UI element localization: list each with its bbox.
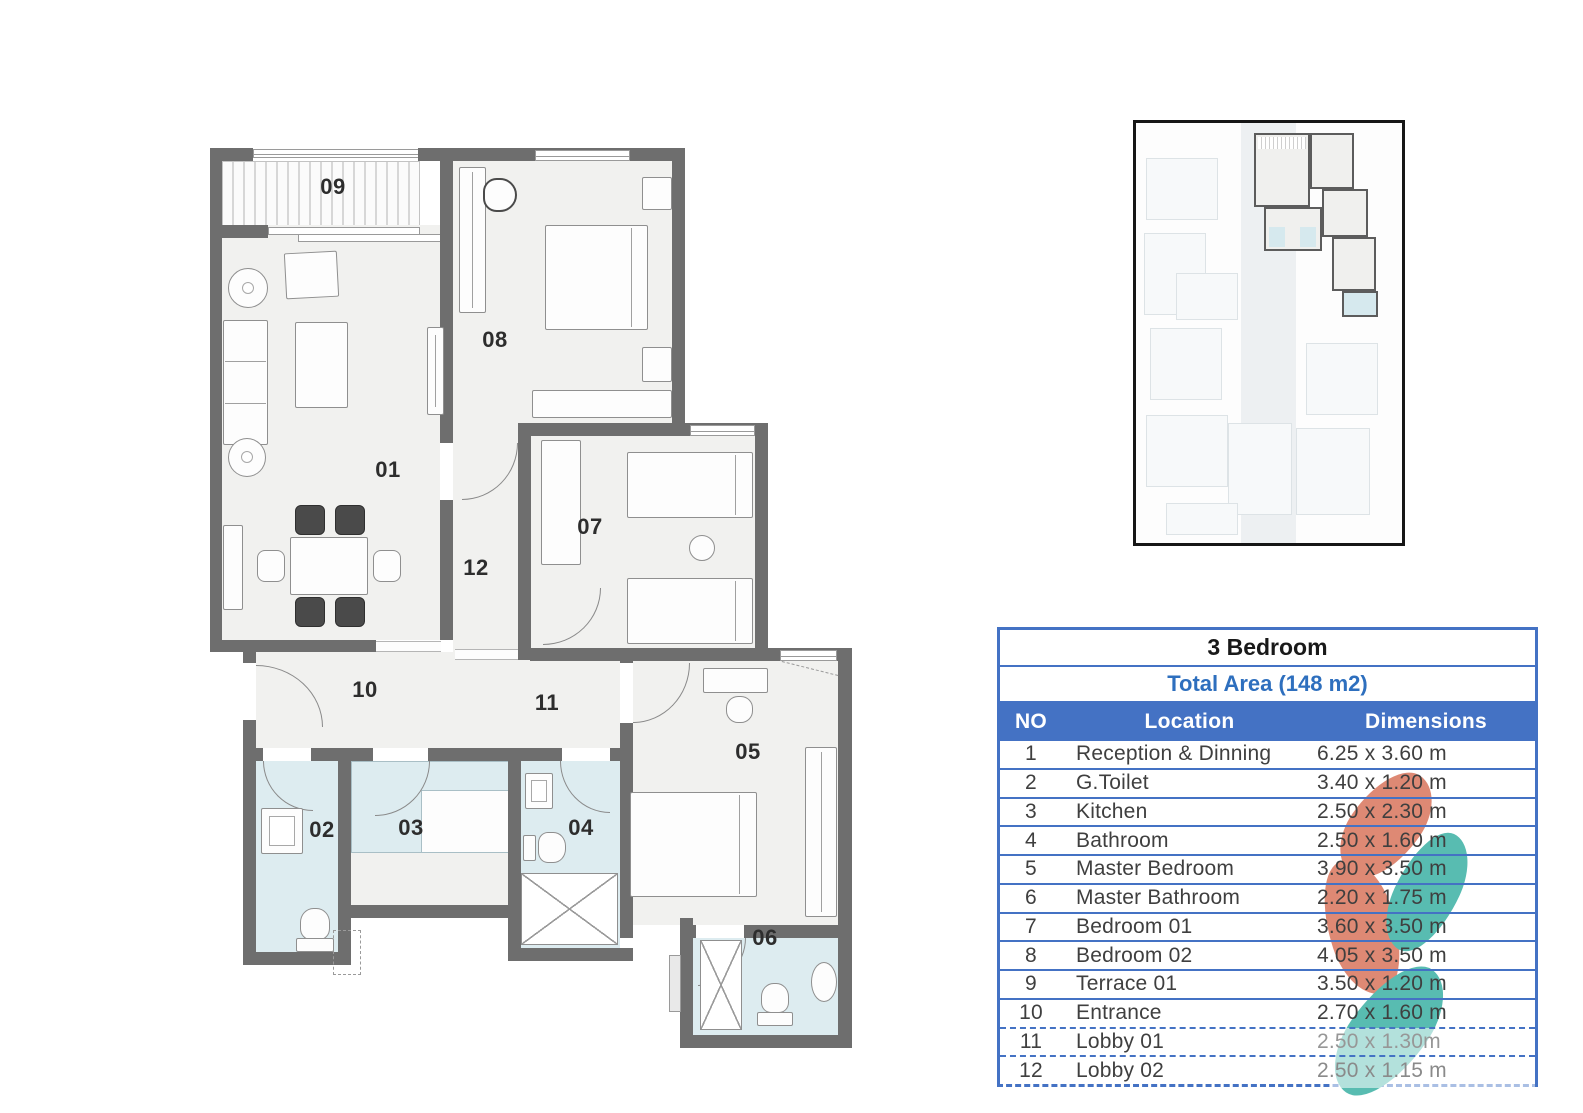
column-header-dimensions: Dimensions: [1317, 710, 1535, 734]
row-number: 2: [1000, 771, 1062, 795]
wall: [210, 148, 222, 652]
row-number: 7: [1000, 915, 1062, 939]
room-label-10: 10: [352, 677, 377, 703]
sink-basin: [269, 816, 295, 846]
pouf-center: [241, 451, 253, 463]
nightstand: [642, 347, 672, 382]
floor-plan: 09 01 08 12 07 10 11 02 03 04 05 06: [183, 140, 855, 1055]
table-row: 2 G.Toilet 3.40 x 1.20 m: [1000, 768, 1535, 797]
door-opening: [373, 748, 428, 761]
row-location: Bedroom 01: [1062, 915, 1309, 939]
sofa: [223, 320, 268, 445]
row-location: Bathroom: [1062, 829, 1309, 853]
table-row: 8 Bedroom 02 4.05 x 3.50 m: [1000, 940, 1535, 969]
wall: [838, 648, 852, 1048]
toilet-tank: [296, 938, 334, 952]
tv-line: [435, 335, 436, 407]
room-label-09: 09: [320, 174, 345, 200]
table-row: 12 Lobby 02 2.50 x 1.15 m: [1000, 1055, 1535, 1084]
wall: [755, 423, 768, 661]
spec-table-body: 1 Reception & Dinning 6.25 x 3.60 m 2 G.…: [1000, 741, 1535, 1084]
threshold: [376, 641, 441, 652]
page: 09 01 08 12 07 10 11 02 03 04 05 06: [0, 0, 1583, 1113]
minimap-room: [1228, 423, 1292, 515]
table-title: 3 Bedroom: [1000, 630, 1535, 667]
table-row: 10 Entrance 2.70 x 1.60 m: [1000, 998, 1535, 1027]
sliding-door: [298, 234, 445, 242]
table-row: 7 Bedroom 01 3.60 x 3.50 m: [1000, 912, 1535, 941]
minimap-room: [1176, 273, 1238, 320]
row-number: 11: [1000, 1030, 1062, 1054]
toilet: [300, 908, 330, 940]
room-label-11: 11: [535, 690, 559, 716]
door-opening: [696, 925, 744, 938]
dining-chair: [257, 550, 285, 582]
armchair: [284, 251, 339, 300]
coffee-table: [295, 322, 348, 408]
wall: [518, 423, 531, 660]
row-number: 8: [1000, 944, 1062, 968]
sofa-cushion-line: [225, 361, 266, 362]
room-label-07: 07: [577, 514, 602, 540]
row-location: Entrance: [1062, 1001, 1309, 1025]
row-dimensions: 3.60 x 3.50 m: [1309, 915, 1535, 939]
column-header-location: Location: [1062, 710, 1317, 734]
row-location: Bedroom 02: [1062, 944, 1309, 968]
side-table: [689, 535, 715, 561]
bed: [630, 792, 757, 897]
row-number: 3: [1000, 800, 1062, 824]
specification-table: 3 Bedroom Total Area (148 m2) NO Locatio…: [997, 627, 1538, 1087]
door-opening: [243, 663, 256, 720]
row-dimensions: 6.25 x 3.60 m: [1309, 742, 1535, 766]
row-dimensions: 2.50 x 2.30 m: [1309, 800, 1535, 824]
minimap-room: [1166, 503, 1238, 535]
kitchen-03-counter-notch: [421, 790, 509, 852]
row-location: Reception & Dinning: [1062, 742, 1309, 766]
minimap-room: [1306, 343, 1378, 415]
threshold: [455, 649, 523, 660]
door-opening: [440, 443, 453, 500]
row-location: Master Bedroom: [1062, 857, 1309, 881]
minimap-room: [1150, 328, 1222, 400]
row-dimensions: 3.90 x 3.50 m: [1309, 857, 1535, 881]
room-label-04: 04: [568, 815, 593, 841]
wall: [338, 905, 521, 918]
dresser: [532, 390, 672, 418]
door-opening: [263, 748, 311, 761]
minimap-highlighted-unit: [1310, 133, 1354, 189]
toilet-tank: [523, 835, 536, 861]
column-header-no: NO: [1000, 710, 1062, 734]
toilet-tank: [757, 1012, 793, 1026]
wardrobe-line: [821, 752, 822, 912]
minimap-highlighted-unit: [1254, 133, 1310, 207]
minimap-highlighted-unit: [1332, 237, 1376, 291]
sink-basin: [531, 780, 547, 802]
dining-chair: [335, 597, 365, 627]
wall: [508, 948, 633, 961]
row-number: 4: [1000, 829, 1062, 853]
row-location: Lobby 01: [1062, 1030, 1309, 1054]
row-dimensions: 4.05 x 3.50 m: [1309, 944, 1535, 968]
table-row: 6 Master Bathroom 2.20 x 1.75 m: [1000, 883, 1535, 912]
row-number: 10: [1000, 1001, 1062, 1025]
dining-chair: [373, 550, 401, 582]
chair: [483, 178, 517, 212]
unit-locator-minimap: [1133, 120, 1405, 546]
row-dimensions: 2.50 x 1.30m: [1309, 1030, 1535, 1054]
table-row: 3 Kitchen 2.50 x 2.30 m: [1000, 797, 1535, 826]
minimap-highlighted-unit: [1264, 207, 1322, 251]
table-subtitle: Total Area (148 m2): [1000, 667, 1535, 703]
wall: [210, 640, 376, 652]
table-row: 9 Terrace 01 3.50 x 1.20 m: [1000, 969, 1535, 998]
row-number: 6: [1000, 886, 1062, 910]
table-row: 11 Lobby 01 2.50 x 1.30m: [1000, 1027, 1535, 1056]
room-label-03: 03: [398, 815, 423, 841]
desk: [703, 668, 768, 693]
wall: [680, 918, 693, 1035]
window: [535, 150, 630, 161]
row-dimensions: 2.50 x 1.60 m: [1309, 829, 1535, 853]
room-label-12: 12: [463, 555, 488, 581]
wall: [680, 1035, 852, 1048]
row-dimensions: 2.50 x 1.15 m: [1309, 1059, 1535, 1083]
toilet: [538, 832, 566, 863]
room-label-02: 02: [309, 817, 334, 843]
row-number: 9: [1000, 972, 1062, 996]
row-dimensions: 3.40 x 1.20 m: [1309, 771, 1535, 795]
row-location: Kitchen: [1062, 800, 1309, 824]
row-location: Master Bathroom: [1062, 886, 1309, 910]
dining-chair: [295, 597, 325, 627]
terrace-railing: [253, 149, 420, 158]
room-label-05: 05: [735, 739, 760, 765]
door-opening: [562, 748, 610, 761]
bed-pillow-line: [739, 795, 740, 894]
minimap-highlighted-unit: [1342, 291, 1378, 317]
minimap-room: [1146, 158, 1218, 220]
sink: [811, 962, 837, 1002]
row-location: Terrace 01: [1062, 972, 1309, 996]
row-number: 12: [1000, 1059, 1062, 1083]
bed: [545, 225, 648, 330]
row-dimensions: 3.50 x 1.20 m: [1309, 972, 1535, 996]
row-number: 1: [1000, 742, 1062, 766]
dashed-unit: [333, 930, 361, 975]
ledge: [669, 955, 681, 1012]
wall: [508, 753, 521, 961]
dining-table: [290, 537, 368, 595]
sideboard: [223, 525, 243, 610]
wall: [672, 148, 685, 436]
table-header: NO Location Dimensions: [1000, 703, 1535, 741]
row-dimensions: 2.20 x 1.75 m: [1309, 886, 1535, 910]
table-row: 4 Bathroom 2.50 x 1.60 m: [1000, 825, 1535, 854]
minimap-highlighted-unit: [1322, 189, 1368, 237]
table-row: 1 Reception & Dinning 6.25 x 3.60 m: [1000, 741, 1535, 768]
window: [780, 650, 837, 661]
row-number: 5: [1000, 857, 1062, 881]
window: [690, 425, 755, 436]
bed-pillow-line: [735, 455, 736, 515]
table-row: 5 Master Bedroom 3.90 x 3.50 m: [1000, 854, 1535, 883]
room-label-01: 01: [375, 457, 400, 483]
desk-chair: [726, 696, 753, 723]
dining-chair: [295, 505, 325, 535]
dining-chair: [335, 505, 365, 535]
pouf-center: [242, 282, 254, 294]
bed-pillow-line: [735, 581, 736, 641]
minimap-room: [1296, 428, 1370, 515]
wardrobe: [541, 440, 581, 565]
minimap-room: [1146, 415, 1228, 487]
toilet: [761, 983, 789, 1013]
room-label-08: 08: [482, 327, 507, 353]
door-opening: [620, 663, 633, 723]
shower-tray: [521, 873, 618, 945]
row-dimensions: 2.70 x 1.60 m: [1309, 1001, 1535, 1025]
row-location: Lobby 02: [1062, 1059, 1309, 1083]
row-location: G.Toilet: [1062, 771, 1309, 795]
room-label-06: 06: [752, 925, 777, 951]
nightstand: [642, 177, 672, 210]
sofa-cushion-line: [225, 403, 266, 404]
shower-stall: [700, 940, 742, 1030]
wardrobe-line: [472, 172, 473, 308]
bed-pillow-line: [631, 228, 632, 327]
